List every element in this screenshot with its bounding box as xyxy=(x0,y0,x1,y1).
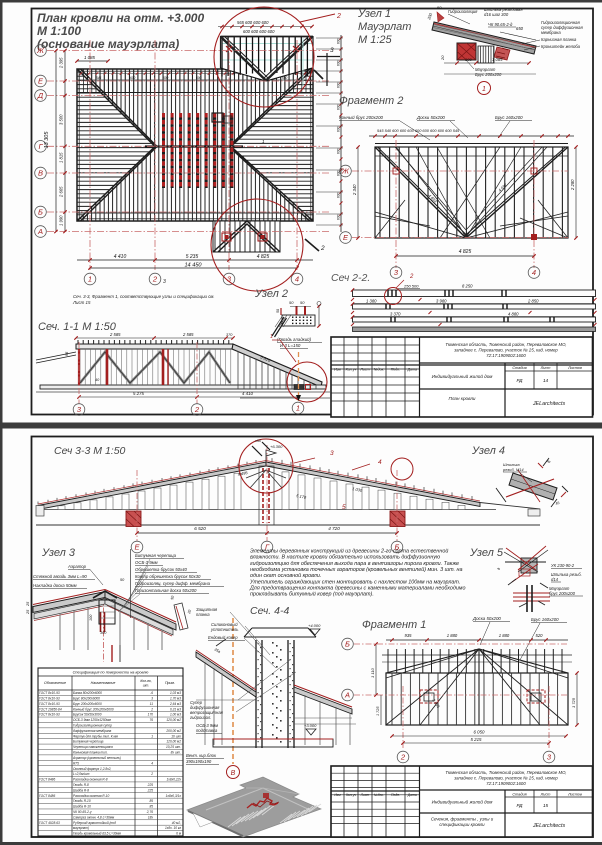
svg-text:4 720: 4 720 xyxy=(328,526,340,531)
svg-text:Сеч. 3-3, Фрагмент 1, соответс: Сеч. 3-3, Фрагмент 1, соответствующие уз… xyxy=(73,294,215,299)
svg-text:Листов: Листов xyxy=(567,366,582,370)
svg-text:2 280: 2 280 xyxy=(570,179,575,191)
svg-text:Для предотвращения контакта др: Для предотвращения контакта древесины с … xyxy=(249,585,466,591)
svg-text:JELarchitects: JELarchitects xyxy=(532,823,566,829)
svg-text:2 340: 2 340 xyxy=(352,184,357,196)
svg-text:1х8х0,3/1х: 1х8х0,3/1х xyxy=(166,794,182,798)
svg-text:1,00 м3: 1,00 м3 xyxy=(170,713,181,717)
svg-text:2: 2 xyxy=(152,275,158,284)
svg-text:необходима установка точечных: необходима установка точечных аэраторов … xyxy=(250,566,463,573)
svg-text:Мауэрлат: Мауэрлат xyxy=(358,21,411,33)
svg-text:Битумная черепица: Битумная черепица xyxy=(73,740,104,744)
svg-text:2,64 м3: 2,64 м3 xyxy=(169,702,181,706)
svg-text:Накладка доска 50мм: Накладка доска 50мм xyxy=(33,583,77,588)
svg-text:40 м2,: 40 м2, xyxy=(172,821,181,825)
svg-text:мауэрлат): мауэрлат) xyxy=(73,826,89,830)
svg-text:600: 600 xyxy=(337,38,341,44)
svg-text:18х: 18х xyxy=(148,815,154,819)
svg-text:Брус 200х200х6000: Брус 200х200х6000 xyxy=(73,702,102,706)
svg-text:1 725: 1 725 xyxy=(571,697,576,708)
svg-text:спецификации кровли: спецификации кровли xyxy=(439,822,485,827)
svg-text:Кол.уч: Кол.уч xyxy=(346,793,356,797)
svg-text:4: 4 xyxy=(295,275,299,284)
svg-text:25: 25 xyxy=(26,609,30,615)
svg-text:Гидроизоляция: Гидроизоляция xyxy=(448,9,478,14)
svg-text:1 880: 1 880 xyxy=(447,633,458,638)
svg-text:Рубероид армостойкий (под: Рубероид армостойкий (под xyxy=(73,821,116,825)
svg-text:мембрана: мембрана xyxy=(541,30,561,35)
svg-text:Кол.уч: Кол.уч xyxy=(346,368,357,372)
svg-text:Ендовый ковер: Ендовый ковер xyxy=(208,635,238,640)
svg-text:1 110: 1 110 xyxy=(370,668,375,678)
svg-text:50: 50 xyxy=(276,309,280,313)
svg-text:Спецификация по поверхности на: Спецификация по поверхности на кровлю xyxy=(73,671,149,675)
svg-text:Гвоздь R-8: Гвоздь R-8 xyxy=(73,783,89,787)
svg-text:Б: Б xyxy=(38,208,43,217)
svg-text:диффузионная мембрана: диффузионная мембрана xyxy=(73,729,111,733)
svg-text:Фрагмент 1: Фрагмент 1 xyxy=(362,619,426,631)
svg-text:3: 3 xyxy=(163,279,166,285)
svg-text:гидроизоляцию для обеспечения: гидроизоляцию для обеспечения выхода пар… xyxy=(250,561,459,567)
svg-text:прокладывать битумный ковер (п: прокладывать битумный ковер (под мауэрла… xyxy=(250,591,374,598)
svg-text:225: 225 xyxy=(147,788,154,792)
svg-text:10 шт: 10 шт xyxy=(171,734,181,738)
svg-text:935: 935 xyxy=(405,633,413,638)
svg-text:шт.: шт. xyxy=(143,684,150,688)
svg-text:85: 85 xyxy=(149,805,153,809)
svg-text:План кровли на отм. +3.000: План кровли на отм. +3.000 xyxy=(37,11,204,25)
svg-text:Брус 160х200: Брус 160х200 xyxy=(495,115,523,120)
svg-text:370: 370 xyxy=(226,333,233,337)
svg-text:600: 600 xyxy=(337,82,341,88)
svg-text:УК 230-90-2: УК 230-90-2 xyxy=(551,563,575,568)
svg-text:545 540 600 600 600 600 60: 545 540 600 600 600 600 600 600 600 600 … xyxy=(377,128,460,133)
svg-text:1,03 м3: 1,03 м3 xyxy=(170,691,181,695)
svg-text:Изм: Изм xyxy=(334,368,341,372)
svg-text:600: 600 xyxy=(130,76,136,80)
svg-text:Подп.: Подп. xyxy=(391,793,400,797)
svg-text:4: 4 xyxy=(378,459,382,466)
svg-text:гидроизол.: гидроизол. xyxy=(190,715,211,720)
svg-text:4: 4 xyxy=(532,268,536,277)
svg-text:JELarchitects: JELarchitects xyxy=(532,401,566,407)
svg-text:5 275: 5 275 xyxy=(133,391,145,396)
svg-text:+4.000: +4.000 xyxy=(308,623,321,628)
svg-text:Битумная черепица: Битумная черепица xyxy=(135,553,177,558)
svg-text:ОСБ-3 9мм 1250х1250мм: ОСБ-3 9мм 1250х1250мм xyxy=(73,718,112,722)
svg-text:Сечения, фрагменты , узлы и: Сечения, фрагменты , узлы и xyxy=(431,817,494,822)
svg-text:100: 100 xyxy=(89,614,93,621)
svg-text:Брус 160х200: Брус 160х200 xyxy=(531,617,559,622)
svg-text:1 085: 1 085 xyxy=(492,57,503,62)
svg-text:1 380: 1 380 xyxy=(366,299,377,304)
svg-text:Вент. кир.блок: Вент. кир.блок xyxy=(186,753,217,758)
svg-text:4 410: 4 410 xyxy=(114,254,127,260)
svg-text:4 880: 4 880 xyxy=(508,312,519,317)
svg-text:600: 600 xyxy=(337,214,341,220)
svg-text:d16 шаг 300: d16 шаг 300 xyxy=(484,12,509,17)
svg-text:ГОСТ 4028-63: ГОСТ 4028-63 xyxy=(39,821,60,825)
svg-text:Гвоздь кровельный d3,5 L=30мм: Гвоздь кровельный d3,5 L=30мм xyxy=(73,832,122,836)
svg-text:25: 25 xyxy=(239,155,244,159)
svg-text:1 085: 1 085 xyxy=(84,55,96,60)
svg-text:Узел 4: Узел 4 xyxy=(471,445,505,457)
svg-text:Ж: Ж xyxy=(36,46,45,55)
svg-text:Гидроизоляц. супер дифф. мембр: Гидроизоляц. супер дифф. мембрана xyxy=(135,581,211,586)
svg-text:х50: х50 xyxy=(254,439,262,443)
svg-text:ГОСТ 8486: ГОСТ 8486 xyxy=(39,794,55,798)
svg-text:Д: Д xyxy=(37,91,44,100)
svg-text:600 600 600 600: 600 600 600 600 xyxy=(243,29,275,34)
svg-text:Тюменская область, Тюменский р: Тюменская область, Тюменский район, Пере… xyxy=(445,342,566,347)
svg-text:-6: -6 xyxy=(150,691,153,695)
svg-text:6 м: 6 м xyxy=(176,832,182,836)
svg-text:1: 1 xyxy=(296,404,300,413)
svg-text:1 815: 1 815 xyxy=(59,152,64,163)
svg-text:Черепица самоклеющаяся: Черепица самоклеющаяся xyxy=(73,745,113,749)
svg-text:3 500: 3 500 xyxy=(59,114,64,125)
svg-text:Лист 15: Лист 15 xyxy=(72,300,91,305)
svg-text:6 050: 6 050 xyxy=(474,730,486,735)
svg-text:2: 2 xyxy=(320,245,325,252)
svg-text:8х шт.: 8х шт. xyxy=(171,751,182,755)
svg-text:565 600 600 600: 565 600 600 600 xyxy=(237,20,269,25)
svg-text:8 250: 8 250 xyxy=(462,284,473,289)
svg-text:2 585: 2 585 xyxy=(182,332,194,337)
svg-text:520: 520 xyxy=(536,633,544,638)
svg-text:Сеч 3-3 М 1:50: Сеч 3-3 М 1:50 xyxy=(54,445,126,457)
svg-text:ГОСТ 8х10-93: ГОСТ 8х10-93 xyxy=(39,696,60,700)
svg-text:№док.: №док. xyxy=(374,793,384,797)
svg-text:2 395: 2 395 xyxy=(59,57,64,69)
svg-text:Листов: Листов xyxy=(567,793,582,797)
svg-text:600: 600 xyxy=(337,60,341,66)
svg-text:ЧК 90-65-2-у: ЧК 90-65-2-у xyxy=(73,810,92,814)
svg-text:225: 225 xyxy=(147,783,154,787)
svg-text:1: 1 xyxy=(270,334,273,340)
svg-text:М 1:25: М 1:25 xyxy=(358,34,393,46)
svg-text:600: 600 xyxy=(337,148,341,154)
svg-text:Брусок 50х50х3000: Брусок 50х50х3000 xyxy=(73,713,102,717)
svg-text:600: 600 xyxy=(337,126,341,132)
svg-text:Индивидуальный жилой дом: Индивидуальный жилой дом xyxy=(432,373,494,379)
svg-text:d14: d14 xyxy=(551,577,559,582)
svg-text:L=2,0м/шт: L=2,0м/шт xyxy=(73,772,90,776)
svg-text:4 825: 4 825 xyxy=(257,254,270,260)
svg-text:1,70 м3: 1,70 м3 xyxy=(170,696,181,700)
svg-text:600: 600 xyxy=(196,76,202,80)
svg-text:Коньковая планка тип.: Коньковая планка тип. xyxy=(73,751,108,755)
svg-text:Фартук для трубы тип. К мм: Фартук для трубы тип. К мм xyxy=(73,734,119,738)
svg-text:11: 11 xyxy=(150,702,154,706)
svg-text:Фрагмент 2: Фрагмент 2 xyxy=(339,95,403,107)
svg-text:Дата: Дата xyxy=(407,368,417,372)
svg-text:Аэратор: Аэратор xyxy=(67,564,87,569)
svg-text:650: 650 xyxy=(516,26,524,31)
svg-text:Доски 50х200: Доски 50х200 xyxy=(416,115,445,120)
svg-text:76: 76 xyxy=(149,718,153,722)
svg-text:Лист: Лист xyxy=(359,368,369,372)
svg-text:50: 50 xyxy=(289,300,294,305)
svg-text:ГОСТ 8х10-93: ГОСТ 8х10-93 xyxy=(39,691,60,695)
svg-text:В: В xyxy=(231,770,236,777)
svg-text:+3.000: +3.000 xyxy=(304,723,317,728)
svg-text:14 450: 14 450 xyxy=(184,263,202,269)
svg-text:ОСБ-3 9мм: ОСБ-3 9мм xyxy=(135,560,158,565)
svg-text:Горизонтальная доска 50х200: Горизонтальная доска 50х200 xyxy=(135,588,197,593)
svg-text:100: 100 xyxy=(465,57,472,62)
svg-text:200,00 м2: 200,00 м2 xyxy=(165,729,181,733)
svg-text:Лист: Лист xyxy=(540,366,551,370)
svg-text:уплотнитель: уплотнитель xyxy=(210,627,238,632)
svg-text:0,31 м3: 0,31 м3 xyxy=(170,707,181,711)
svg-text:2: 2 xyxy=(150,772,153,776)
svg-text:Гидроизоляционная супер: Гидроизоляционная супер xyxy=(73,724,112,728)
svg-text:Доска 50х200: Доска 50х200 xyxy=(472,616,501,621)
svg-text:один скат основной кровли.: один скат основной кровли. xyxy=(250,572,321,579)
svg-text:Карнизная планка: Карнизная планка xyxy=(541,37,577,42)
svg-text:1: 1 xyxy=(88,275,92,284)
svg-text:Дата: Дата xyxy=(407,793,417,797)
svg-text:Стадия: Стадия xyxy=(512,793,526,797)
svg-text:1: 1 xyxy=(482,86,486,93)
svg-text:3: 3 xyxy=(151,696,153,700)
svg-text:Балка 80х200х6000: Балка 80х200х6000 xyxy=(73,691,102,695)
svg-text:14: 14 xyxy=(543,378,549,383)
svg-text:2,76: 2,76 xyxy=(146,810,153,814)
svg-text:Сеч. 4-4: Сеч. 4-4 xyxy=(250,605,289,617)
svg-text:Шайба R-10: Шайба R-10 xyxy=(73,805,91,809)
svg-text:3 980: 3 980 xyxy=(436,299,447,304)
svg-text:4 825: 4 825 xyxy=(459,249,472,255)
svg-text:2: 2 xyxy=(409,274,414,280)
svg-text:влажности. В настиле кровли об: влажности. В настиле кровли обязательно … xyxy=(250,555,440,561)
svg-text:ГОСТ 8486: ГОСТ 8486 xyxy=(39,778,55,782)
svg-text:+6.300: +6.300 xyxy=(270,444,283,449)
svg-text:4: 4 xyxy=(151,761,153,765)
svg-text:Обрешетка брусок 50х40: Обрешетка брусок 50х40 xyxy=(135,567,188,572)
svg-text:50: 50 xyxy=(300,300,305,305)
svg-text:Стяжной гвоздь 3мм L=90: Стяжной гвоздь 3мм L=90 xyxy=(33,574,87,579)
svg-text:ЧК 90.65-2-д: ЧК 90.65-2-д xyxy=(488,22,513,27)
svg-text:Сеч 2-2.: Сеч 2-2. xyxy=(331,272,370,284)
svg-text:ГОСТ 20850-84: ГОСТ 20850-84 xyxy=(39,707,62,711)
svg-text:120,00 м2: 120,00 м2 xyxy=(166,740,181,744)
svg-text:1 990: 1 990 xyxy=(59,215,64,226)
svg-text:300: 300 xyxy=(100,631,107,635)
svg-text:25: 25 xyxy=(26,601,30,607)
svg-text:72:17:1909002:1600: 72:17:1909002:1600 xyxy=(486,353,526,358)
svg-text:2 585: 2 585 xyxy=(109,332,121,337)
svg-text:85: 85 xyxy=(149,799,153,803)
svg-text:резьб. М14: резьб. М14 xyxy=(502,467,524,472)
svg-text:Конный брус 200х200: Конный брус 200х200 xyxy=(339,115,384,120)
svg-text:50: 50 xyxy=(437,5,442,10)
svg-text:ГОСТ 8х10-93: ГОСТ 8х10-93 xyxy=(39,702,60,706)
svg-text:западнее с. Перевалово, участо: западнее с. Перевалово, участок № 25, ка… xyxy=(453,348,558,353)
svg-text:(Гвоздь гладкий): (Гвоздь гладкий) xyxy=(277,337,312,342)
svg-text:Тюменская область, Тюменский р: Тюменская область, Тюменский район, Пере… xyxy=(445,770,566,775)
svg-text:Узел 2: Узел 2 xyxy=(254,288,288,300)
svg-text:1х8х. 10 кг: 1х8х. 10 кг xyxy=(165,826,181,830)
svg-text:72:17:1909002:1600: 72:17:1909002:1600 xyxy=(486,781,526,786)
svg-text:Шайба R-8: Шайба R-8 xyxy=(73,788,89,792)
svg-text:А: А xyxy=(37,227,43,236)
svg-text:Раскладка оконная R-10: Раскладка оконная R-10 xyxy=(73,794,110,798)
svg-text:2: 2 xyxy=(150,707,153,711)
svg-text:западнее с. Перевалово, участо: западнее с. Перевалово, участок № 25, ка… xyxy=(453,776,558,781)
svg-text:3: 3 xyxy=(330,450,334,457)
svg-text:планка: планка xyxy=(196,612,210,617)
svg-text:Саморез оконн. 4,8 L=30мм: Саморез оконн. 4,8 L=30мм xyxy=(73,815,115,819)
svg-text:5 235: 5 235 xyxy=(186,254,199,260)
svg-text:Подп.: Подп. xyxy=(391,368,401,372)
svg-text:Лист: Лист xyxy=(360,793,370,797)
svg-text:Брус 80х200х6000: Брус 80х200х6000 xyxy=(73,696,100,700)
svg-text:Оконный фартук 1,2.8х2,: Оконный фартук 1,2.8х2, xyxy=(73,767,112,771)
svg-text:Раскладка оконная R-8: Раскладка оконная R-8 xyxy=(73,778,108,782)
svg-text:1х8х0,22х: 1х8х0,22х xyxy=(166,778,181,782)
svg-text:13 305: 13 305 xyxy=(44,131,50,149)
svg-text:Ж: Ж xyxy=(341,167,350,176)
svg-text:2: 2 xyxy=(400,753,406,762)
svg-text:РД: РД xyxy=(517,378,524,383)
svg-text:Лист: Лист xyxy=(540,793,551,797)
svg-text:5: 5 xyxy=(342,504,346,511)
svg-text:Узел 3: Узел 3 xyxy=(41,547,76,559)
svg-text:250 500: 250 500 xyxy=(403,284,419,289)
svg-text:120,00 м2: 120,00 м2 xyxy=(166,718,181,722)
svg-text:брус 200х200: брус 200х200 xyxy=(549,591,576,596)
svg-text:3 370: 3 370 xyxy=(390,312,401,317)
svg-text:Кол-во,: Кол-во, xyxy=(140,679,151,683)
svg-text:Аэратор (кровельный вентиль): Аэратор (кровельный вентиль) xyxy=(72,756,121,760)
svg-text:Узел 1: Узел 1 xyxy=(357,8,391,20)
svg-text:1: 1 xyxy=(151,734,153,738)
svg-text:20: 20 xyxy=(440,55,445,61)
svg-text:5 215: 5 215 xyxy=(471,737,483,742)
svg-text:2 850: 2 850 xyxy=(527,299,539,304)
svg-text:545: 545 xyxy=(96,76,102,80)
svg-text:10,25 шт.: 10,25 шт. xyxy=(166,745,181,749)
svg-text:4 410: 4 410 xyxy=(242,391,254,396)
svg-text:R75: R75 xyxy=(73,761,79,765)
svg-text:600: 600 xyxy=(163,76,169,80)
svg-text:Изм: Изм xyxy=(334,793,341,797)
svg-text:1 880: 1 880 xyxy=(499,633,510,638)
svg-text:2: 2 xyxy=(336,13,341,20)
svg-text:А: А xyxy=(344,691,350,700)
svg-text:Наименование: Наименование xyxy=(91,681,116,685)
svg-text:15: 15 xyxy=(543,803,549,808)
svg-text:М 1:100: М 1:100 xyxy=(37,24,81,38)
svg-text:Узел 5: Узел 5 xyxy=(469,547,504,559)
svg-text:В: В xyxy=(38,169,43,178)
svg-text:Стадия: Стадия xyxy=(512,366,526,370)
svg-text:170: 170 xyxy=(148,713,154,717)
svg-text:2: 2 xyxy=(194,405,200,414)
svg-text:Индивидуальный жилой дом: Индивидуальный жилой дом xyxy=(432,799,494,805)
svg-text:Сеч. 1-1 М 1:50: Сеч. 1-1 М 1:50 xyxy=(38,321,117,333)
svg-text:3: 3 xyxy=(330,47,334,54)
svg-text:390х190х190: 390х190х190 xyxy=(186,759,212,764)
svg-text:Прим.: Прим. xyxy=(165,681,175,685)
svg-text:ГОСТ 8х10-93: ГОСТ 8х10-93 xyxy=(39,713,60,717)
svg-text:Конный брус 200х200х6000: Конный брус 200х200х6000 xyxy=(73,707,114,711)
svg-text:подставка: подставка xyxy=(196,728,218,733)
svg-text:№док.: №док. xyxy=(374,368,385,372)
svg-text:6 520: 6 520 xyxy=(194,526,206,531)
svg-text:Б: Б xyxy=(345,640,350,649)
svg-text:(основание мауэрлата): (основание мауэрлата) xyxy=(37,37,179,51)
svg-text:Брус 200х200: Брус 200х200 xyxy=(475,72,502,77)
svg-text:Элементы деревянных конструкци: Элементы деревянных конструкций из древе… xyxy=(250,548,448,555)
svg-text:1 725: 1 725 xyxy=(376,706,380,716)
svg-text:Утеплитель ограждающих стен мо: Утеплитель ограждающих стен монтировать … xyxy=(249,579,460,585)
svg-text:Обозначение: Обозначение xyxy=(44,681,66,685)
svg-text:РД: РД xyxy=(517,803,524,808)
svg-text:План кровли: План кровли xyxy=(449,396,476,401)
svg-text:Кронштейн желоба: Кронштейн желоба xyxy=(541,44,581,49)
svg-text:600: 600 xyxy=(337,192,341,198)
svg-text:2 665: 2 665 xyxy=(59,186,64,198)
svg-text:Гвоздь R-10: Гвоздь R-10 xyxy=(73,799,91,803)
